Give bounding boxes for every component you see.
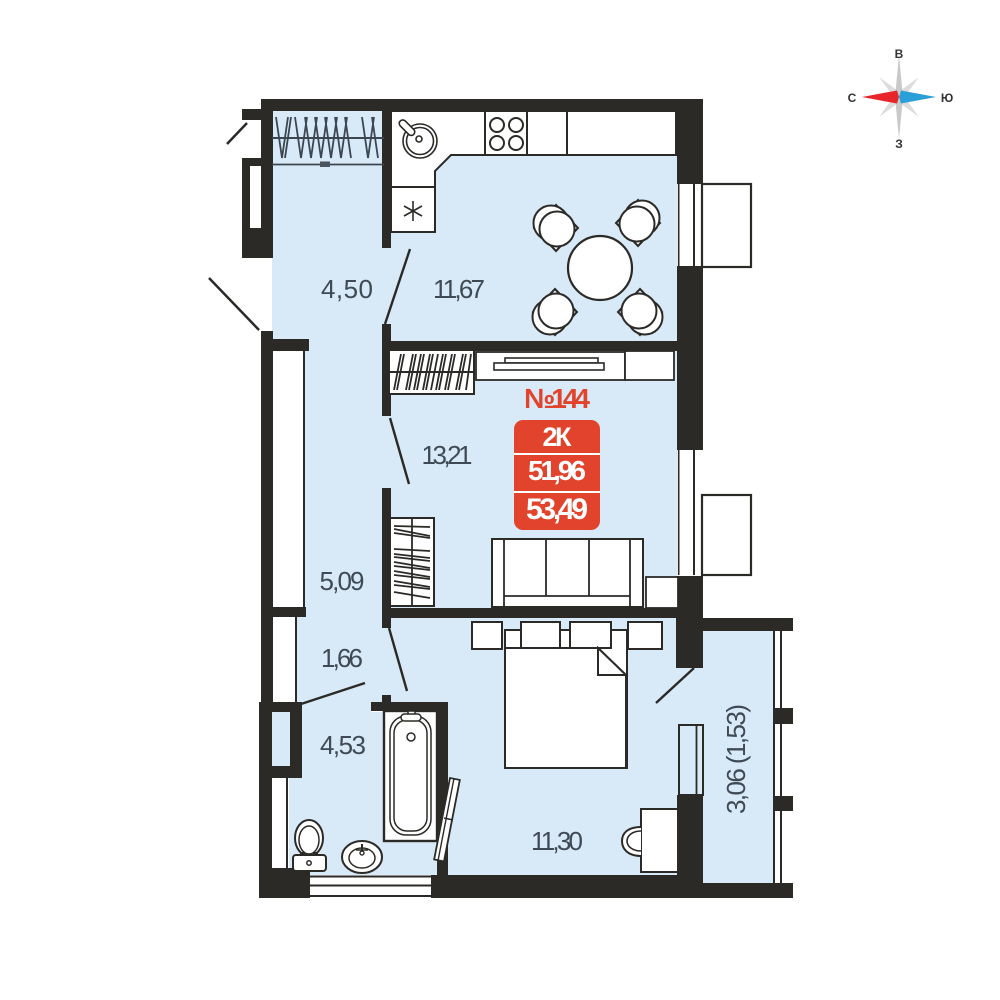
svg-text:В: В <box>895 47 904 61</box>
svg-text:4,53: 4,53 <box>320 730 366 760</box>
svg-text:2К: 2К <box>543 422 573 452</box>
svg-text:51,96: 51,96 <box>528 455 586 486</box>
svg-text:З: З <box>895 137 903 151</box>
svg-text:5,09: 5,09 <box>320 566 365 596</box>
svg-text:№144: №144 <box>524 383 590 414</box>
svg-text:Ю: Ю <box>941 91 953 105</box>
svg-text:С: С <box>848 91 857 105</box>
svg-text:1,66: 1,66 <box>321 643 363 673</box>
svg-text:11,30: 11,30 <box>531 826 583 856</box>
svg-text:3,06 (1,53): 3,06 (1,53) <box>721 704 751 814</box>
svg-text:13,21: 13,21 <box>422 440 473 470</box>
svg-text:4,50: 4,50 <box>321 274 373 304</box>
svg-text:53,49: 53,49 <box>526 493 588 526</box>
svg-text:11,67: 11,67 <box>433 274 485 304</box>
